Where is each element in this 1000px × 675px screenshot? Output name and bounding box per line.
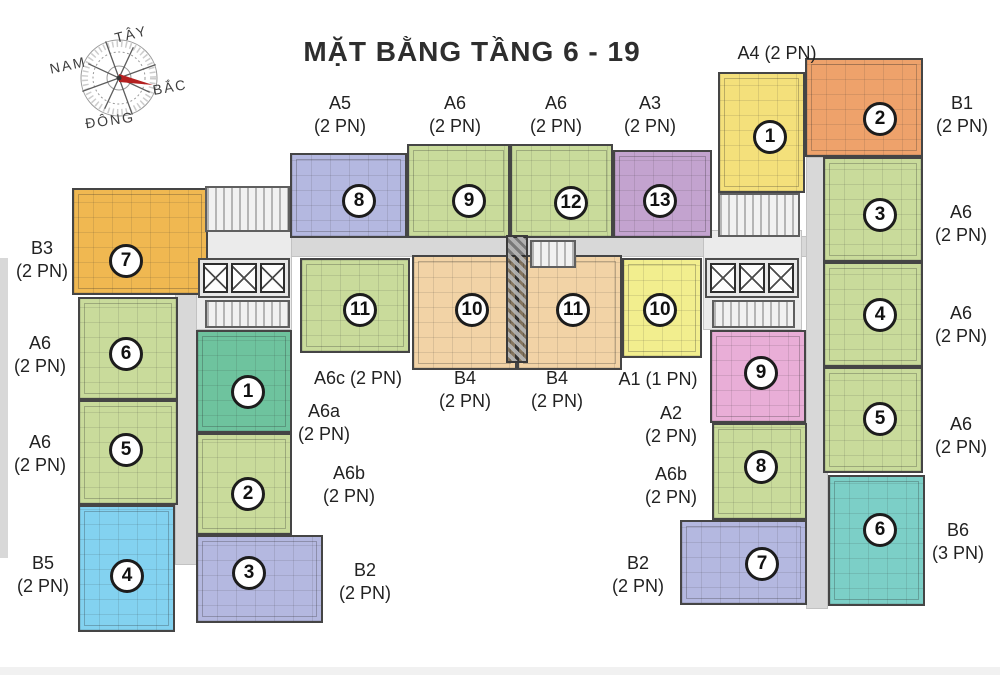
elevator-shaft-icon xyxy=(260,263,285,293)
corridor-left-wing xyxy=(175,250,198,565)
unit-a4-1: 1 xyxy=(718,72,805,193)
unit-number-badge: 11 xyxy=(556,293,590,327)
unit-number-badge: 5 xyxy=(109,433,143,467)
unit-number-badge: 10 xyxy=(455,293,489,327)
page-title: MẶT BẰNG TẦNG 6 - 19 xyxy=(272,36,672,68)
elevator-core-icon xyxy=(198,258,290,298)
unit-type-label: B1(2 PN) xyxy=(897,92,1000,138)
staircase-icon xyxy=(205,300,290,328)
unit-a6-12: 12 xyxy=(510,144,613,238)
unit-type-label: B3(2 PN) xyxy=(0,237,107,283)
unit-type-label: A6a(2 PN) xyxy=(259,400,389,446)
unit-type-label: B6(3 PN) xyxy=(893,519,1000,565)
unit-type-label: A3(2 PN) xyxy=(585,92,715,138)
unit-number-badge: 8 xyxy=(744,450,778,484)
unit-number-badge: 12 xyxy=(554,186,588,220)
staircase-icon xyxy=(712,300,795,328)
unit-number-badge: 2 xyxy=(863,102,897,136)
unit-number-badge: 11 xyxy=(343,293,377,327)
unit-a6-9: 9 xyxy=(407,144,510,238)
elevator-shaft-icon xyxy=(768,263,794,293)
unit-number-badge: 4 xyxy=(110,559,144,593)
edge-shadow-left xyxy=(0,258,8,558)
unit-number-badge: 1 xyxy=(753,120,787,154)
unit-type-label: A6b(2 PN) xyxy=(606,463,736,509)
elevator-shaft-icon xyxy=(231,263,256,293)
unit-number-badge: 4 xyxy=(863,298,897,332)
staircase-icon xyxy=(718,193,800,237)
staircase-icon xyxy=(530,240,576,268)
unit-type-label: B2(2 PN) xyxy=(573,552,703,598)
staircase-icon xyxy=(205,186,290,232)
unit-a6b-2: 2 xyxy=(196,433,292,535)
shaft-icon xyxy=(506,235,528,363)
elevator-core-icon xyxy=(705,258,799,298)
unit-number-badge: 3 xyxy=(232,556,266,590)
unit-number-badge: 7 xyxy=(745,547,779,581)
compass-rose: TÂY NAM BẮC ĐÔNG xyxy=(0,0,240,160)
unit-b4-11: 11 xyxy=(517,255,622,370)
unit-number-badge: 13 xyxy=(643,184,677,218)
unit-type-label: A6(2 PN) xyxy=(0,431,105,477)
elevator-shaft-icon xyxy=(710,263,736,293)
unit-type-label: A1 (1 PN) xyxy=(593,368,723,391)
floor-plan: MẶT BẰNG TẦNG 6 - 19 TÂY NAM BẮC ĐÔNG 76… xyxy=(0,0,1000,675)
unit-a3-13: 13 xyxy=(613,150,712,238)
unit-number-badge: 6 xyxy=(863,513,897,547)
unit-b4-10: 10 xyxy=(412,255,517,370)
unit-number-badge: 7 xyxy=(109,244,143,278)
unit-type-label: A6(2 PN) xyxy=(896,201,1000,247)
unit-type-label: A5(2 PN) xyxy=(275,92,405,138)
unit-type-label: B5(2 PN) xyxy=(0,552,108,598)
unit-type-label: A4 (2 PN) xyxy=(712,42,842,65)
unit-number-badge: 6 xyxy=(109,337,143,371)
unit-number-badge: 9 xyxy=(452,184,486,218)
unit-type-label: A6(2 PN) xyxy=(0,332,105,378)
unit-type-label: A6b(2 PN) xyxy=(284,462,414,508)
unit-number-badge: 8 xyxy=(342,184,376,218)
bottom-strip xyxy=(0,667,1000,675)
unit-type-label: A2(2 PN) xyxy=(606,402,736,448)
unit-type-label: B2(2 PN) xyxy=(300,559,430,605)
unit-type-label: A6(2 PN) xyxy=(896,302,1000,348)
unit-a6c-11: 11 xyxy=(300,258,410,353)
unit-a1-10: 10 xyxy=(622,258,702,358)
unit-type-label: A6(2 PN) xyxy=(896,413,1000,459)
unit-a5-8: 8 xyxy=(290,153,407,238)
elevator-shaft-icon xyxy=(203,263,228,293)
unit-number-badge: 10 xyxy=(643,293,677,327)
unit-number-badge: 9 xyxy=(744,356,778,390)
elevator-shaft-icon xyxy=(739,263,765,293)
unit-number-badge: 3 xyxy=(863,198,897,232)
unit-number-badge: 2 xyxy=(231,477,265,511)
unit-number-badge: 5 xyxy=(863,402,897,436)
